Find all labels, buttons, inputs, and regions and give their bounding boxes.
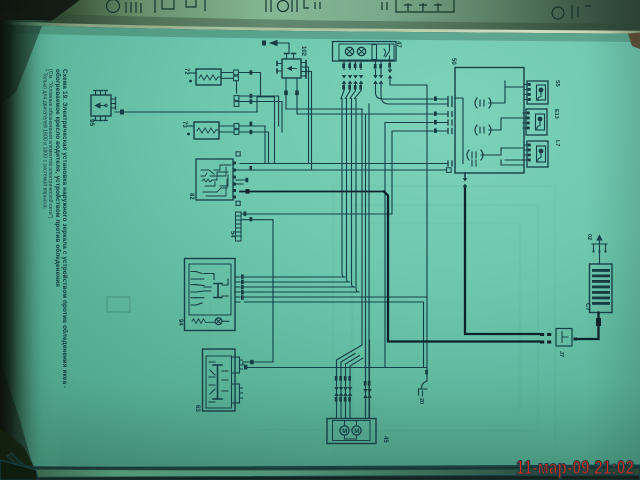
svg-text:M: M	[354, 429, 359, 435]
svg-text:M: M	[342, 429, 347, 435]
svg-text:94: 94	[177, 319, 183, 326]
svg-text:63: 63	[194, 405, 200, 412]
svg-text:* Только для двигателей 1600 и: * Только для двигателей 1600 и 1800 с си…	[42, 69, 49, 209]
svg-text:95: 95	[88, 119, 95, 127]
svg-text:E13: E13	[553, 109, 559, 119]
svg-text:S5: S5	[554, 80, 560, 87]
svg-text:11-мар-09 21:02: 11-мар-09 21:02	[516, 457, 634, 478]
svg-text:73: 73	[181, 121, 187, 128]
svg-text:72: 72	[183, 68, 189, 75]
svg-text:102: 102	[300, 46, 306, 57]
svg-text:54: 54	[229, 231, 235, 238]
svg-text:20: 20	[418, 398, 424, 404]
svg-text:Схема 19. Электрическая устано: Схема 19. Электрическая установка наружн…	[61, 69, 68, 388]
svg-text:50: 50	[450, 58, 456, 65]
svg-text:47: 47	[395, 41, 401, 48]
svg-text:обогреваемое кресло водителя,: обогреваемое кресло водителя, устройство…	[54, 69, 61, 287]
svg-text:C7: C7	[584, 303, 590, 311]
svg-text:82: 82	[188, 193, 194, 200]
svg-text:L7: L7	[554, 140, 560, 146]
svg-text:45: 45	[382, 436, 388, 443]
svg-text:J7: J7	[558, 351, 564, 357]
svg-text:02: 02	[586, 234, 592, 240]
